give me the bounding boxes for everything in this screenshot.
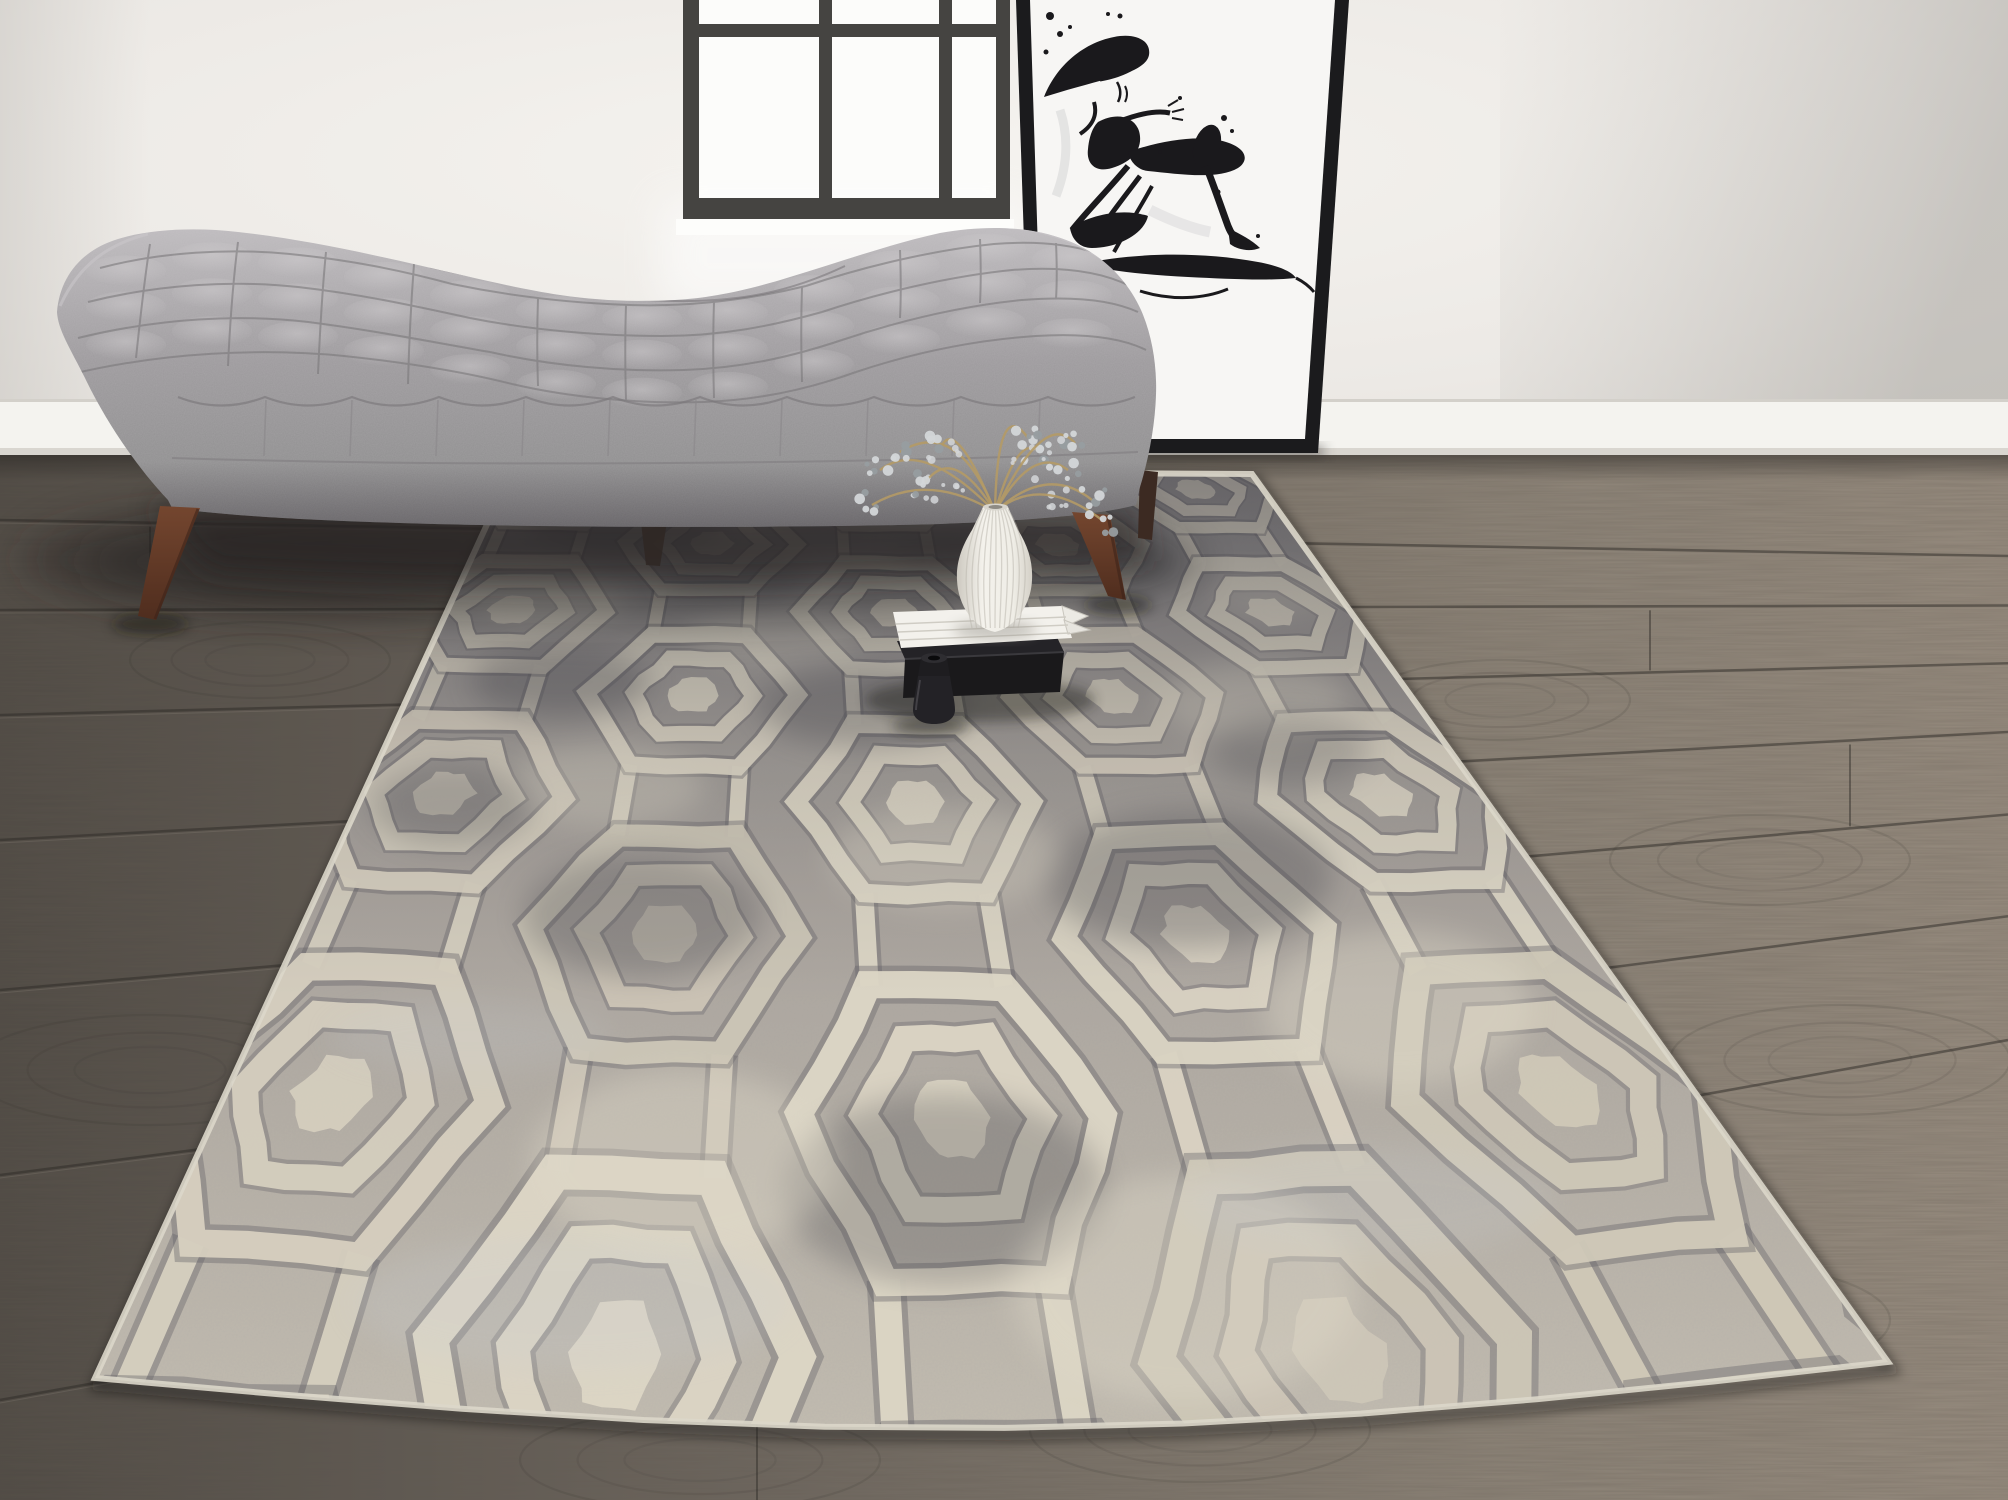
flower-blossom: [862, 506, 869, 513]
flower-blossom: [1107, 515, 1112, 520]
scene-canvas: [0, 0, 2008, 1500]
flower-blossom: [912, 491, 919, 498]
flower-blossom: [1102, 529, 1109, 536]
window-muntin-vertical-2: [939, 0, 952, 198]
flower-blossom: [1102, 487, 1107, 492]
flower-blossom: [903, 455, 910, 462]
flower-blossom: [901, 441, 910, 450]
flower-blossom: [1033, 431, 1042, 440]
flower-blossom: [915, 476, 924, 485]
flower-blossom: [1011, 426, 1021, 436]
window-muntin-vertical-1: [819, 0, 832, 198]
flower-blossom: [925, 431, 936, 442]
wall-right-shadow: [1500, 0, 2008, 460]
flower-blossom: [1053, 465, 1062, 474]
flower-blossom: [854, 494, 865, 505]
window-frame-left: [683, 0, 699, 220]
flower-blossom: [1109, 527, 1119, 537]
flower-blossom: [1067, 442, 1077, 452]
window-frame-bottom: [683, 198, 1010, 219]
flower-blossom: [1075, 471, 1082, 478]
flower-blossom: [1063, 433, 1068, 438]
flower-blossom: [1045, 441, 1052, 448]
room-photo: [0, 0, 2008, 1500]
flower-blossom: [1086, 502, 1093, 509]
flower-blossom: [867, 470, 873, 476]
flower-blossom: [872, 456, 879, 463]
flower-blossom: [1078, 442, 1085, 449]
flower-blossom: [934, 444, 943, 453]
flower-blossom: [883, 465, 894, 476]
flower-blossom: [1079, 486, 1086, 493]
vase-mouth-hole: [989, 505, 1003, 509]
flower-blossom: [870, 507, 879, 516]
flower-blossom: [865, 462, 870, 467]
flower-blossom: [1017, 440, 1027, 450]
flower-blossom: [1068, 458, 1079, 469]
flower-blossom: [1085, 510, 1094, 519]
flower-blossom: [891, 453, 900, 462]
flower-blossom: [1100, 515, 1107, 522]
flower-blossom: [1026, 434, 1031, 439]
flower-blossom: [1065, 476, 1070, 481]
flower-blossom: [1070, 430, 1077, 437]
window-muntin-horizontal: [699, 24, 1010, 37]
